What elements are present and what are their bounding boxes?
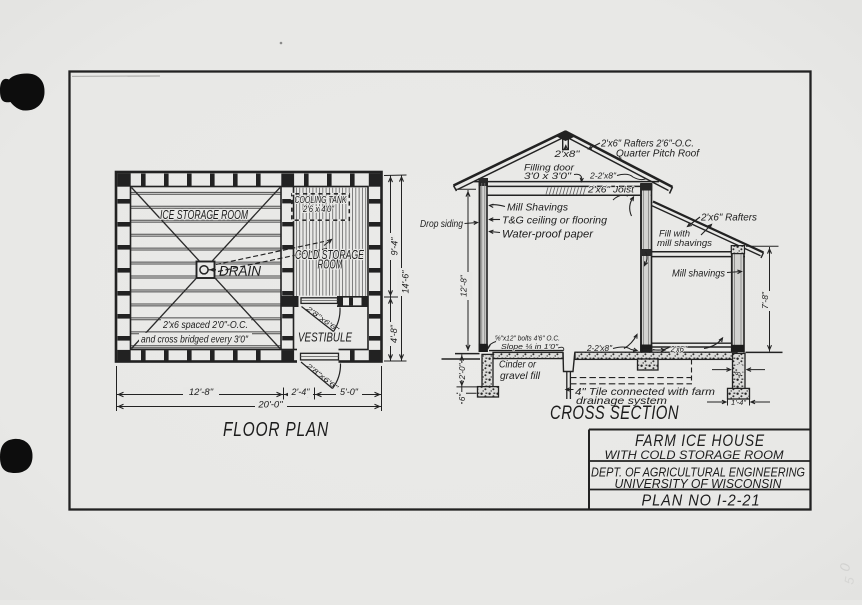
svg-text:Slope ¼ in 1'0": Slope ¼ in 1'0" [501, 342, 558, 351]
svg-text:Cinder or: Cinder or [499, 359, 537, 370]
svg-text:Water-proof paper: Water-proof paper [502, 228, 594, 240]
svg-text:2'x6" Rafters: 2'x6" Rafters [700, 211, 758, 223]
svg-text:2-2'x8": 2-2'x8" [589, 170, 617, 180]
svg-text:2'x6 spaced 2'0"-O.C.: 2'x6 spaced 2'0"-O.C. [162, 320, 248, 331]
svg-text:DRAIN: DRAIN [219, 264, 261, 279]
svg-text:12'-8": 12'-8" [189, 387, 214, 398]
svg-text:5'-0": 5'-0" [340, 387, 359, 397]
svg-text:3'0 x 3'0": 3'0 x 3'0" [524, 171, 572, 182]
svg-text:2'x6": 2'x6" [670, 345, 688, 354]
svg-text:Mill Shavings: Mill Shavings [507, 201, 569, 213]
svg-text:2'x8": 2'x8" [553, 149, 580, 159]
svg-text:ICE STORAGE ROOM: ICE STORAGE ROOM [160, 207, 248, 222]
svg-text:4'-8": 4'-8" [389, 324, 399, 343]
svg-text:7'-8": 7'-8" [760, 291, 770, 309]
svg-text:gravel fill: gravel fill [500, 371, 541, 382]
svg-text:Mill shavings: Mill shavings [672, 268, 725, 279]
svg-text:1'-4": 1'-4" [731, 398, 746, 407]
svg-text:2'x6" Joist: 2'x6" Joist [587, 185, 634, 196]
svg-text:2'-0": 2'-0" [458, 362, 467, 380]
svg-text:2'-4": 2'-4" [291, 387, 311, 397]
svg-text:WITH COLD STORAGE ROOM: WITH COLD STORAGE ROOM [605, 448, 784, 462]
svg-text:PLAN NO I-2-21: PLAN NO I-2-21 [642, 493, 761, 510]
svg-text:20'-0": 20'-0" [257, 399, 283, 410]
svg-text:and cross bridged every 3'0": and cross bridged every 3'0" [141, 335, 248, 346]
svg-text:Quarter Pitch Roof: Quarter Pitch Roof [616, 148, 700, 159]
svg-text:T&G ceiling or flooring: T&G ceiling or flooring [502, 214, 607, 226]
svg-text:CROSS SECTION: CROSS SECTION [550, 402, 679, 424]
svg-text:ROOM: ROOM [318, 257, 343, 271]
svg-text:Drop siding: Drop siding [420, 218, 463, 230]
svg-text:VESTIBULE: VESTIBULE [298, 331, 353, 345]
svg-text:9'-4": 9'-4" [389, 237, 399, 256]
svg-text:8": 8" [734, 369, 743, 376]
svg-text:UNIVERSITY OF WISCONSIN: UNIVERSITY OF WISCONSIN [615, 476, 783, 491]
svg-text:6": 6" [458, 393, 467, 401]
svg-text:12'-8": 12'-8" [458, 274, 468, 297]
svg-text:mill shavings: mill shavings [657, 238, 712, 249]
svg-text:2'6 x 4'0": 2'6 x 4'0" [302, 204, 334, 215]
svg-text:FLOOR PLAN: FLOOR PLAN [223, 419, 329, 441]
svg-text:2-2'x8": 2-2'x8" [586, 343, 613, 353]
svg-text:14'-6": 14'-6" [400, 270, 410, 294]
